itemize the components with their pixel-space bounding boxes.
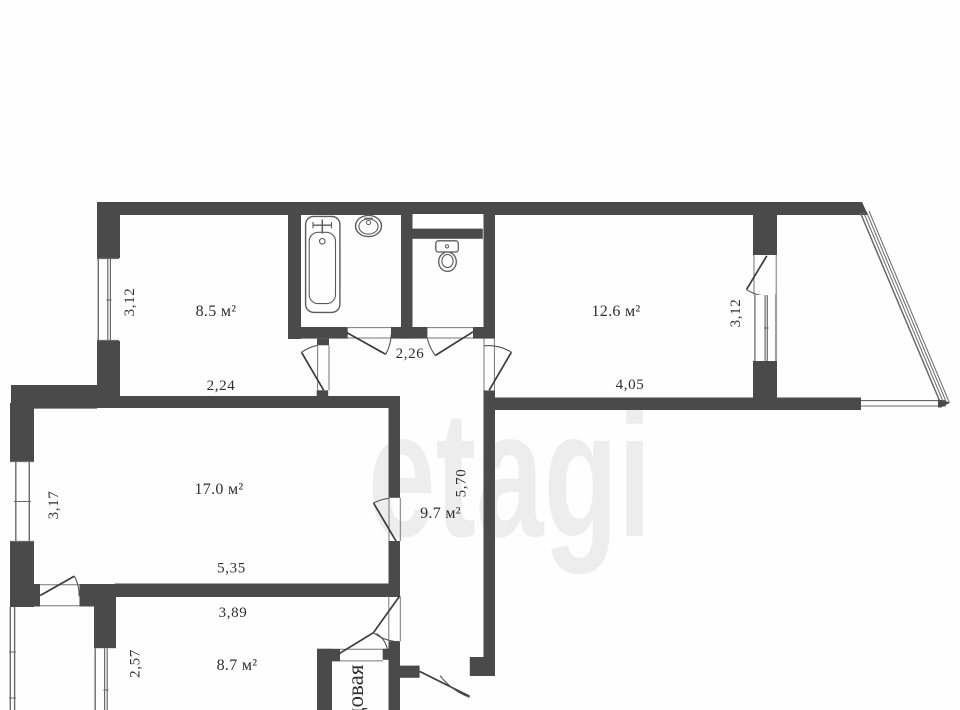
- svg-text:4,05: 4,05: [616, 377, 645, 393]
- svg-text:3,17: 3,17: [46, 491, 62, 520]
- svg-text:2,57: 2,57: [128, 649, 144, 678]
- svg-text:3,12: 3,12: [728, 299, 744, 328]
- svg-text:17.0 м²: 17.0 м²: [194, 481, 243, 498]
- svg-text:5,70: 5,70: [454, 469, 470, 498]
- svg-text:2,24: 2,24: [207, 378, 236, 394]
- svg-text:12.6 м²: 12.6 м²: [591, 303, 640, 320]
- svg-text:3,12: 3,12: [122, 288, 138, 317]
- svg-text:9.7 м²: 9.7 м²: [420, 505, 461, 522]
- svg-text:кладовая: кладовая: [343, 664, 368, 710]
- svg-text:8.7 м²: 8.7 м²: [217, 657, 258, 674]
- svg-text:5,35: 5,35: [217, 561, 246, 577]
- svg-text:3,89: 3,89: [219, 605, 248, 621]
- svg-text:2,26: 2,26: [396, 346, 425, 362]
- svg-text:8.5 м²: 8.5 м²: [196, 303, 237, 320]
